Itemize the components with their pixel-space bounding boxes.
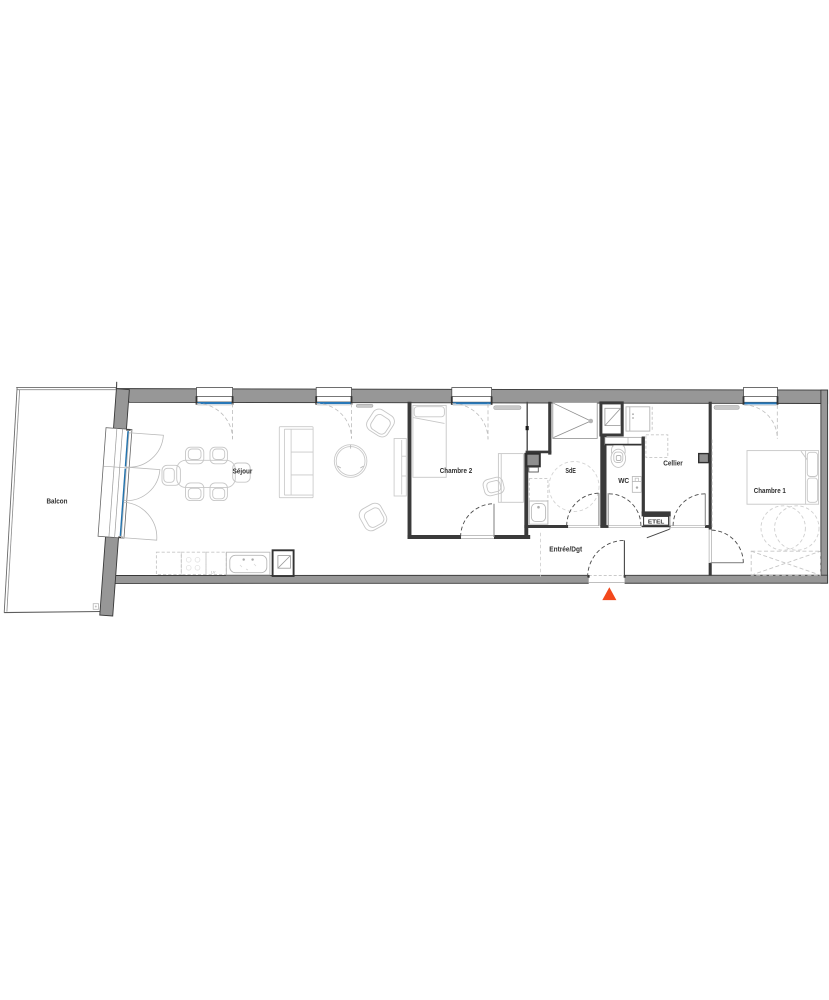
svg-text:Séjour: Séjour [233,466,253,475]
svg-text:Cellier: Cellier [663,458,683,467]
svg-text:Chambre 1: Chambre 1 [754,486,786,495]
svg-text:WC: WC [618,476,630,485]
svg-text:Entrée/Dgt: Entrée/Dgt [549,544,582,553]
svg-text:Balcon: Balcon [47,496,68,505]
svg-text:SdE: SdE [565,466,576,475]
svg-text:Chambre 2: Chambre 2 [440,466,473,475]
svg-text:ETEL: ETEL [648,520,665,526]
svg-text:LV: LV [211,570,216,574]
